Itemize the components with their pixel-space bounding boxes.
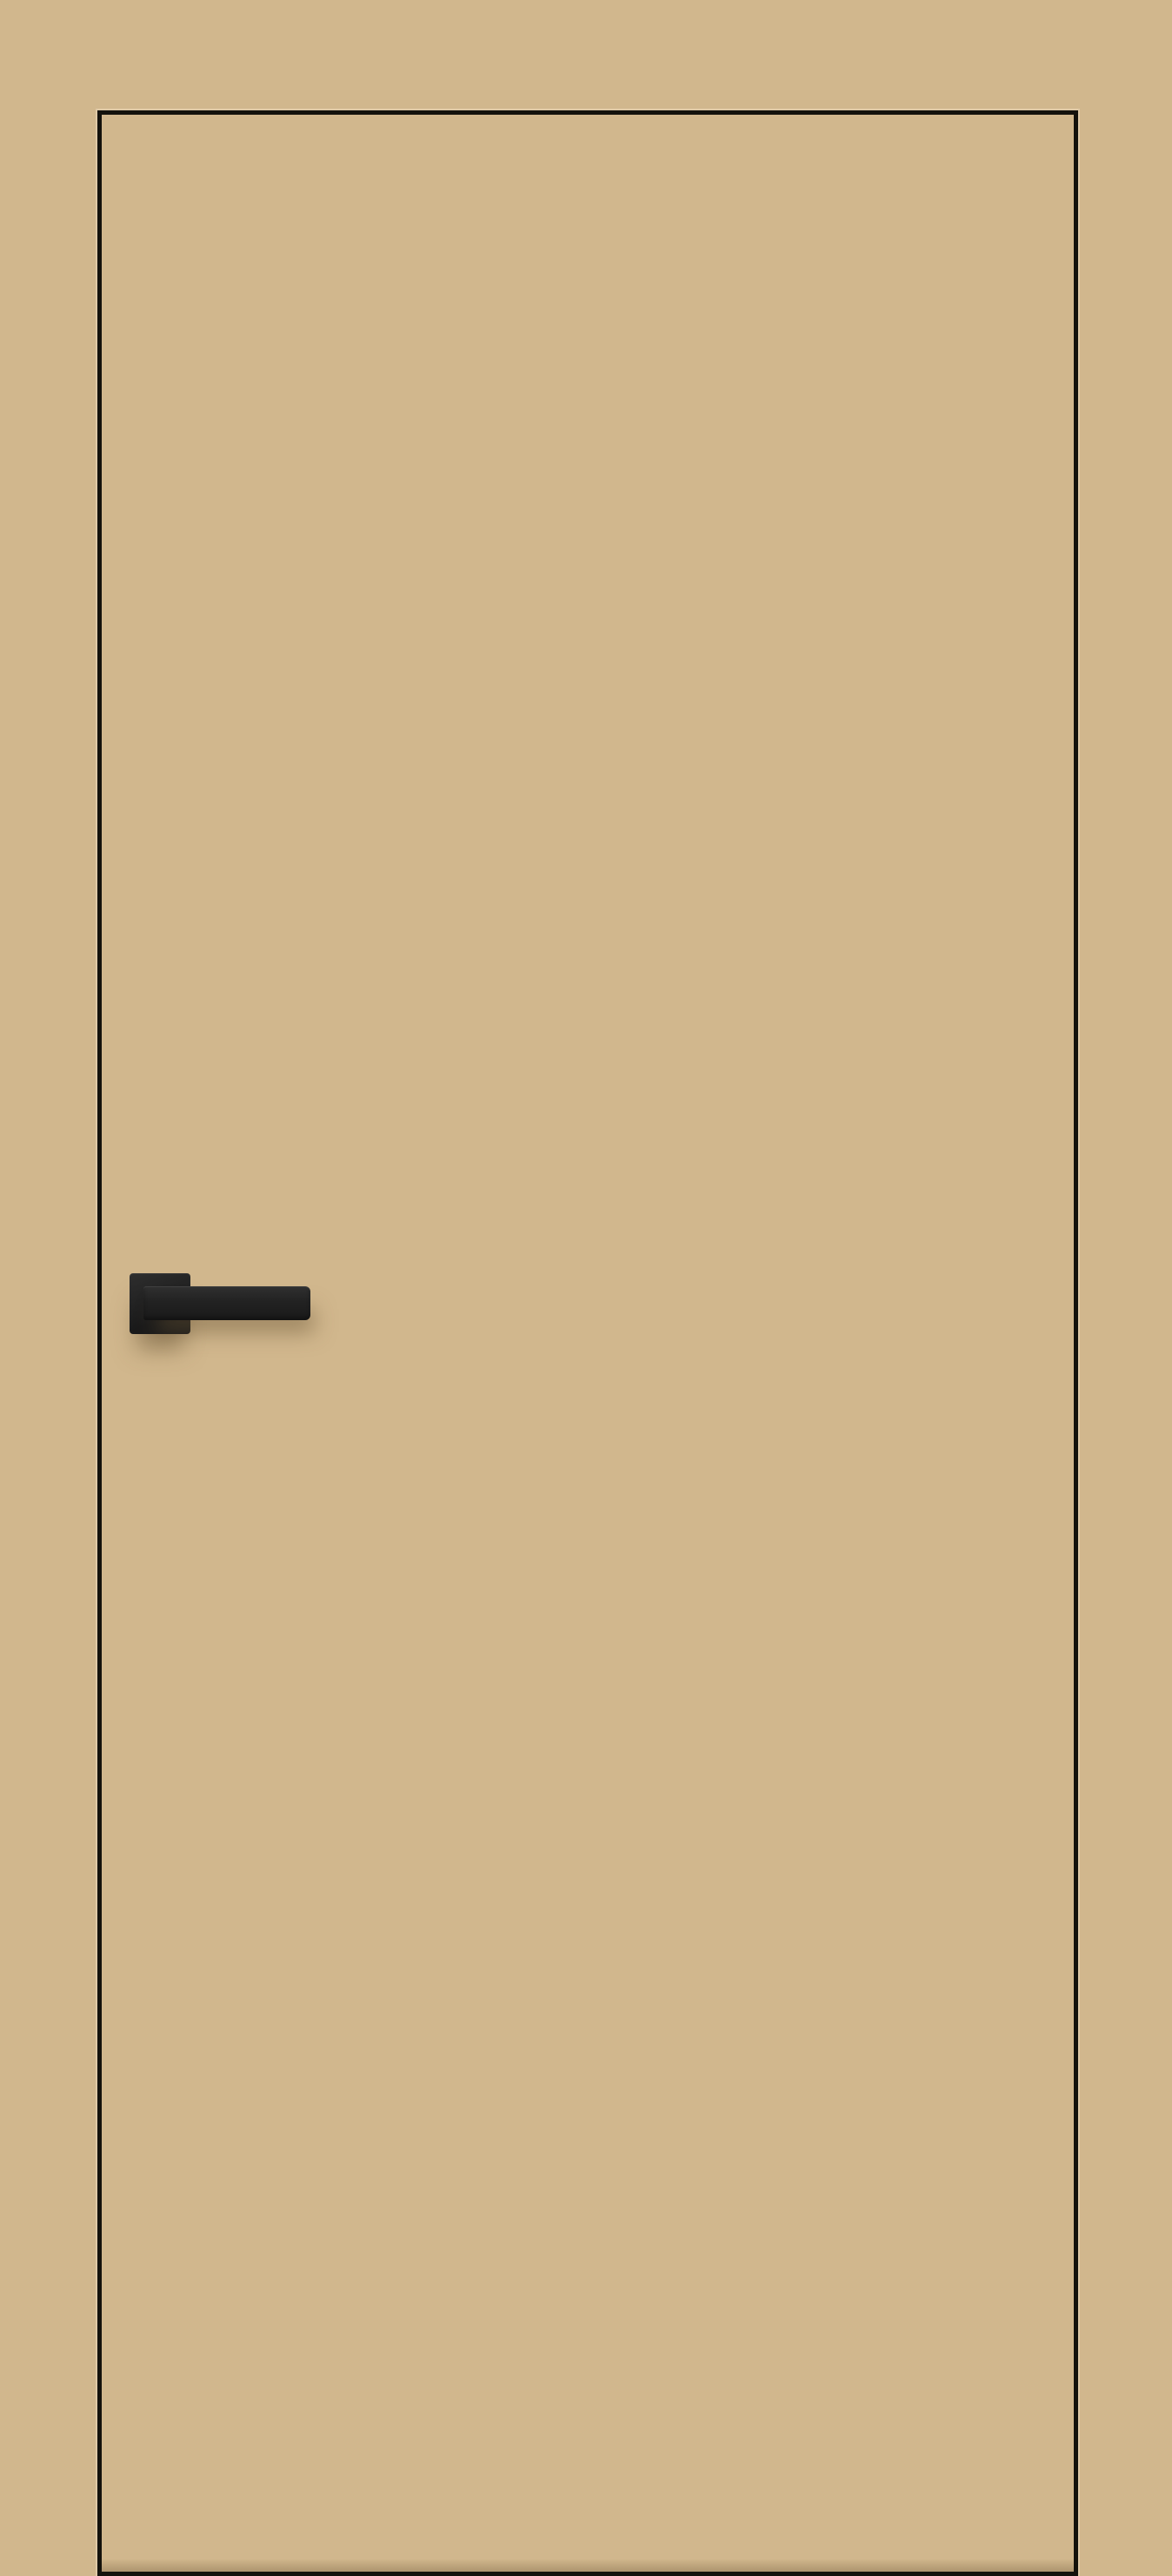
door-leaf (97, 110, 1078, 2576)
door-handle-lever (143, 1286, 310, 1320)
wall-background (0, 0, 1172, 2576)
